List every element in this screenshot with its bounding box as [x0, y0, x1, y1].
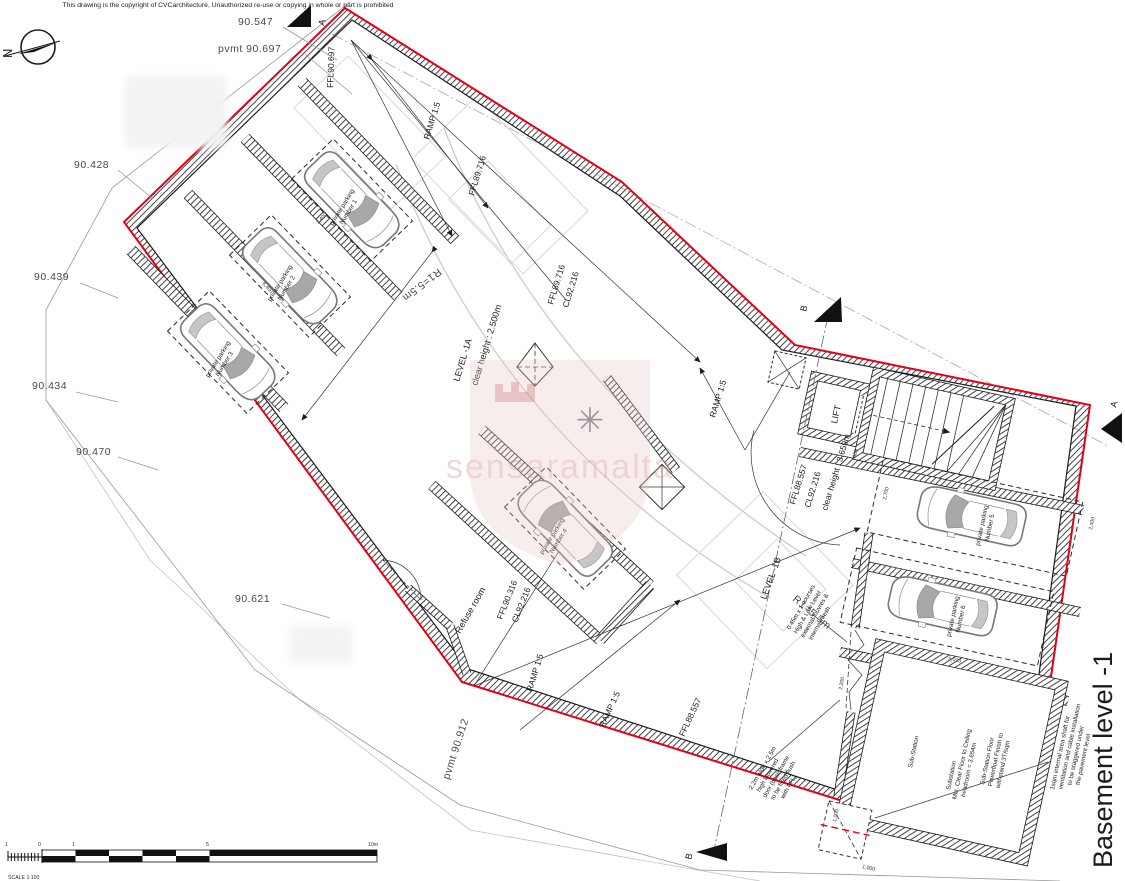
section-marker-b-bottom: B: [683, 843, 727, 861]
blur-patch-1: [125, 76, 227, 148]
svg-text:10m: 10m: [368, 842, 378, 848]
svg-text:0: 0: [38, 842, 41, 848]
louvre-dash: [846, 632, 851, 708]
drawing-page: { "copyright": "This drawing is the copy…: [0, 0, 1125, 881]
svg-text:A: A: [1108, 400, 1119, 408]
svg-text:90.470: 90.470: [76, 446, 111, 458]
vent-shaft-box: [815, 800, 875, 860]
svg-text:90.547: 90.547: [238, 16, 273, 28]
svg-text:2,700: 2,700: [882, 486, 891, 500]
svg-text:sensaramalta: sensaramalta: [446, 448, 674, 486]
blur-patch-2: [290, 626, 352, 663]
svg-text:B: B: [798, 304, 809, 312]
svg-text:pvmt 90.697: pvmt 90.697: [218, 43, 281, 55]
svg-text:2,200: 2,200: [838, 676, 846, 690]
shaft-box-1: [768, 351, 806, 389]
ramp-label-1: RAMP 1:5: [421, 101, 442, 141]
north-arrow: N: [0, 30, 60, 64]
copyright-note: This drawing is the copyright of CVCarch…: [63, 2, 394, 9]
svg-text:1: 1: [5, 842, 8, 848]
scale-bar: 1 0 1 5 10m SCALE 1:100: [5, 842, 378, 881]
svg-text:90.434: 90.434: [32, 380, 67, 392]
svg-text:✳: ✳: [576, 402, 605, 440]
section-marker-a-right: A: [1101, 400, 1122, 443]
svg-text:90.621: 90.621: [235, 593, 270, 605]
svg-text:2,400: 2,400: [1088, 516, 1097, 530]
section-marker-b-top: B: [798, 297, 842, 322]
svg-text:SCALE 1:100: SCALE 1:100: [8, 875, 40, 881]
substation-room: [842, 645, 1062, 859]
refuse-room-label: Refuse room: [453, 585, 487, 635]
svg-text:90.439: 90.439: [34, 271, 69, 283]
svg-text:1: 1: [72, 842, 75, 848]
refuse-ffl: FFL90.316 CL92.216: [495, 579, 533, 624]
svg-text:clear height : 3.659m: clear height : 3.659m: [819, 433, 852, 512]
door-note-leader: [768, 700, 840, 762]
level1b-label: LEVEL -1B: [758, 556, 783, 601]
arc-radius-label: R1=5.5m: [400, 266, 444, 304]
level1a-ffl: FFL89.716 CL92.216: [545, 263, 580, 308]
svg-text:5: 5: [206, 842, 209, 848]
ramp-label-3: RAMP 1:5: [524, 653, 545, 693]
north-label: N: [0, 49, 15, 58]
drawing-title: Basement level -1: [1088, 652, 1118, 868]
level1b-ffl: FFL88.557 CL92.216 clear height : 3.659m: [787, 433, 852, 512]
svg-text:A: A: [316, 18, 327, 26]
svg-text:B: B: [683, 852, 694, 860]
ffl-ramp-top: FFL89.716: [466, 154, 488, 196]
louvres-note: 0.45m x 1 courses High & Low Level exter…: [786, 584, 838, 643]
svg-text:1,000: 1,000: [862, 864, 876, 873]
ffl-ramp-bottom: FFL88.557: [677, 696, 704, 738]
ffl-entry: FFL90.697: [325, 46, 336, 88]
svg-text:90.428: 90.428: [74, 159, 109, 171]
ramp-label-2: RAMP 1:5: [707, 379, 728, 419]
svg-text:pvmt 90.912: pvmt 90.912: [440, 717, 471, 781]
